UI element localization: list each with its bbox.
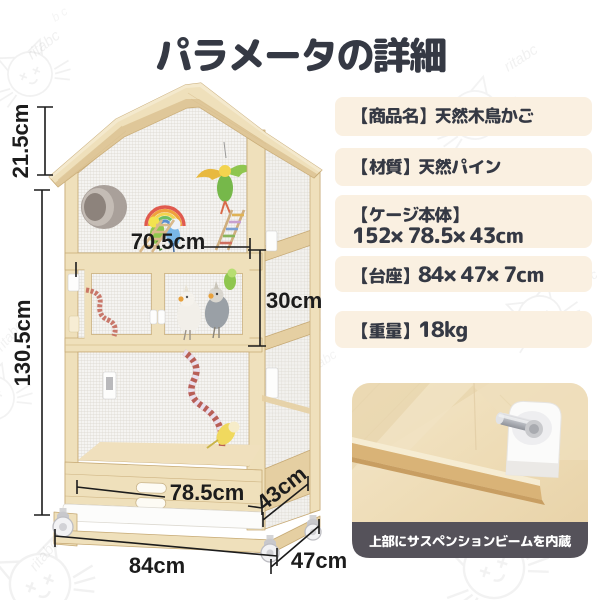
svg-text:21.5cm: 21.5cm <box>8 104 33 179</box>
svg-text:78.5cm: 78.5cm <box>170 480 245 505</box>
svg-text:84cm: 84cm <box>129 553 185 578</box>
svg-text:30cm: 30cm <box>266 288 322 313</box>
svg-text:47cm: 47cm <box>291 548 347 573</box>
svg-text:130.5cm: 130.5cm <box>10 300 35 387</box>
svg-text:70.5cm: 70.5cm <box>131 229 206 254</box>
